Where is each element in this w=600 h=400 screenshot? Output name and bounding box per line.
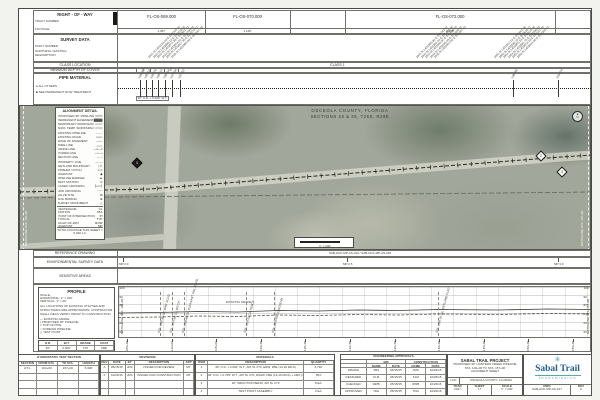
elevation-label-right: 50 bbox=[584, 331, 587, 334]
scale-value: 1" = 200' bbox=[492, 388, 522, 391]
hydro-row-empty-cell bbox=[19, 374, 37, 382]
profile-legend-symbol-5: △ bbox=[40, 330, 42, 334]
elevation-label-right: 70 bbox=[584, 313, 587, 316]
material-row-cell: 554' bbox=[304, 373, 334, 381]
approval-row-cell: 05/15/15 bbox=[387, 375, 407, 382]
hydro-row: HT-1104+00157+005,300' bbox=[19, 366, 99, 374]
legend-row: SURVEY MONUMENT△ bbox=[57, 201, 103, 205]
profile-station-label: 115+00 bbox=[215, 341, 218, 351]
route-marker-3-number: 3 bbox=[561, 170, 563, 174]
approval-row-cell: 05/15/15 bbox=[387, 389, 407, 396]
approval-row-cell: 10/26/15 bbox=[426, 375, 446, 382]
pipe-station-tick bbox=[513, 80, 514, 97]
revision-row-empty-cell bbox=[135, 389, 184, 396]
scale-bar-label: 1" = 200' bbox=[295, 245, 355, 248]
dwg-rev-row: DWG SAB-HCK-MP-AS-017 REV 0 bbox=[524, 385, 591, 396]
legend-label: SURVEY MONUMENT bbox=[58, 201, 89, 205]
material-row-cell: 36" INDUCTION BEND, API 5L X70 bbox=[208, 381, 304, 389]
tract-id-2: FL-OS-070.000 bbox=[207, 14, 288, 19]
elevation-label-right: 80 bbox=[584, 304, 587, 307]
profile-station-label: 155+00 bbox=[572, 341, 575, 351]
reference-drawing-title: REFERENCE DRAWING bbox=[55, 251, 95, 255]
hydro-row-empty bbox=[19, 381, 99, 389]
elevation-label-left: 100 bbox=[120, 287, 125, 290]
design-data-row: 36" 0.600" X70 FBE bbox=[39, 346, 114, 351]
revision-row-empty-cell bbox=[101, 389, 109, 396]
material-row-cell: 2 bbox=[196, 373, 208, 381]
revision-row-cell: MT bbox=[184, 373, 194, 381]
environmental-labelbox: ENVIRONMENTAL SURVEY DATA bbox=[33, 257, 118, 268]
pipe-station-tick bbox=[146, 80, 147, 97]
profile-legend-box: PROFILE SCALE: HORIZONTAL: 1" = 200' VER… bbox=[38, 287, 115, 339]
tract-divider-4 bbox=[555, 10, 556, 34]
scale-cell: SCALE 1" = 200' bbox=[492, 385, 522, 396]
abbrev-value: MP bbox=[98, 224, 103, 227]
revision-row-cell: A bbox=[101, 365, 109, 373]
approval-row-cell: APPROVED bbox=[341, 389, 367, 396]
design-value-wt: 0.600" bbox=[58, 346, 77, 351]
revision-row-cell: ISSUED FOR REVIEW bbox=[135, 365, 184, 373]
material-row: 4TEST POINT ASSEMBLY2 EA. bbox=[196, 389, 334, 396]
loc-value: OSCEOLA COUNTY, FLORIDA bbox=[460, 378, 522, 384]
environmental-title: ENVIRONMENTAL SURVEY DATA bbox=[35, 260, 115, 264]
material-row-cell: 4,746' bbox=[304, 365, 334, 373]
class-location-title: CLASS LOCATION bbox=[60, 63, 91, 67]
elevation-label-right: 90 bbox=[584, 296, 587, 299]
logo-block: ✳ Sabal Trail TRANSMISSION DWG SAB-HCK-M… bbox=[523, 354, 592, 396]
hydro-row-empty-cell bbox=[37, 374, 58, 382]
revision-row-cell: JDS bbox=[126, 373, 135, 381]
approval-row-cell: JMS bbox=[406, 368, 426, 375]
right-of-way-title: RIGHT - OF - WAY bbox=[33, 12, 117, 17]
matchline-right-label: MATCHLINE STA. 157+00 bbox=[581, 211, 584, 246]
elevation-label-left: 50 bbox=[120, 331, 123, 334]
design-value-od: 36" bbox=[39, 346, 58, 351]
approval-row: DESIGNEDKLM05/15/15KLM10/26/15 bbox=[341, 375, 446, 382]
logo-name: Sabal Trail bbox=[524, 364, 591, 374]
hydro-row-empty bbox=[19, 389, 99, 396]
matchline-right-line bbox=[588, 106, 589, 250]
reference-drawing-labelbox: REFERENCE DRAWING bbox=[33, 250, 118, 257]
pipe-station-tick bbox=[558, 80, 559, 97]
approvals-rows: BIDCONSTRUCTIONNAMEDATENAMEDATEDRAWNJMS0… bbox=[341, 360, 446, 396]
pipe-station-tick bbox=[158, 80, 159, 97]
revision-row-cell: MT bbox=[184, 365, 194, 373]
depth-tick-1 bbox=[136, 68, 137, 74]
revision-row-cell: ISSUED FOR CONSTRUCTION bbox=[135, 373, 184, 381]
scale-bar-segments bbox=[300, 241, 340, 244]
approval-row-cell: 10/26/15 bbox=[426, 368, 446, 375]
legend-symbol: △ bbox=[100, 201, 102, 205]
profile-station-label: 110+00 bbox=[171, 341, 174, 351]
title-block-text: SABAL TRAIL PROJECT PROPOSED 36" HUNTERS… bbox=[448, 355, 522, 378]
profile-station-label: 150+00 bbox=[527, 341, 530, 351]
approvals-block: ENGINEERING APPROVALS BIDCONSTRUCTIONNAM… bbox=[340, 354, 447, 396]
tract-id-1: FL-OS-069.000 bbox=[120, 14, 203, 19]
alignment-detail-rows: PROPOSED 36" PIPELINE━━━━PERMANENT EASEM… bbox=[57, 114, 103, 205]
design-value-coat: FBE bbox=[95, 346, 114, 351]
revision-row-empty-cell bbox=[109, 381, 126, 389]
design-data-table: O.D. W.T. GRADE COAT 36" 0.600" X70 FBE bbox=[38, 340, 115, 351]
materials-rows: ITEMDESCRIPTIONQUANTITY136" O.D. x 0.600… bbox=[196, 361, 334, 397]
title-meta-row: YEAR 2017 SHEET 17 SCALE 1" = 200' bbox=[448, 385, 522, 396]
hydro-row-empty-cell bbox=[79, 389, 99, 396]
pipe-material-line bbox=[118, 88, 591, 89]
approval-row-cell: KLM bbox=[406, 375, 426, 382]
revision-row-empty bbox=[101, 389, 194, 396]
dwg-cell: DWG SAB-HCK-MP-AS-017 bbox=[524, 385, 571, 396]
hydro-row-cell: 5,300' bbox=[79, 366, 99, 374]
route-marker-2-number: 2 bbox=[540, 154, 542, 158]
revisions-rows: REVDATEBYDESCRIPTIONAPPA05/15/15JDSISSUE… bbox=[101, 361, 194, 397]
pipe-station-tick bbox=[140, 80, 141, 97]
alignment-sheet: RIGHT - OF - WAY TRACT NUMBER FOOTAGE SU… bbox=[0, 0, 600, 400]
dwg-value: SAB-HCK-MP-AS-017 bbox=[524, 388, 570, 391]
rev-cell: REV 0 bbox=[571, 385, 591, 396]
road-vertical bbox=[163, 106, 181, 250]
approval-row: DRAWNJMS05/15/15JMS10/26/15 bbox=[341, 368, 446, 375]
pipe-station-tick bbox=[152, 80, 153, 97]
approval-row-cell: TDH bbox=[406, 389, 426, 396]
material-row: 336" INDUCTION BEND, API 5L X708 EA. bbox=[196, 381, 334, 389]
material-row-cell: 36" O.D. x 0.709" W.T., API 5L X70, DSAW… bbox=[208, 373, 304, 381]
county-label: OSCEOLA COUNTY, FLORIDA bbox=[230, 108, 470, 113]
palm-starburst-icon: ✳ bbox=[524, 356, 591, 364]
pipe-legend-text-1: ALL OTHERS bbox=[38, 84, 57, 88]
approval-row-cell: 05/15/15 bbox=[387, 382, 407, 389]
material-row-cell: 3 bbox=[196, 381, 208, 389]
pipe-material-title: PIPE MATERIAL bbox=[33, 75, 117, 80]
scale-reference-bar bbox=[113, 12, 117, 25]
approval-row-cell: TDH bbox=[367, 389, 387, 396]
hydro-row-empty-cell bbox=[37, 389, 58, 396]
milepost-label: MP 3.0 bbox=[554, 263, 563, 266]
company-logo: ✳ Sabal Trail TRANSMISSION bbox=[524, 355, 591, 385]
approval-row-cell: 10/26/15 bbox=[426, 389, 446, 396]
profile-station-label: 120+00 bbox=[260, 341, 263, 351]
reference-drawing-value: SAB-HCK-MP-AS-016 / SAB-HCK-MP-AS-018 bbox=[260, 252, 460, 255]
hydro-test-block: HYDROSTATIC TEST SECTION SECTIONFROM STA… bbox=[18, 354, 100, 396]
revision-row: A05/15/15JDSISSUED FOR REVIEWMT bbox=[101, 365, 194, 373]
approval-row-cell: CHECKED bbox=[341, 382, 367, 389]
revision-row-cell: 05/15/15 bbox=[109, 365, 126, 373]
hydro-row-empty-cell bbox=[19, 381, 37, 389]
approval-row-cell: DRAWN bbox=[341, 368, 367, 375]
hydro-row-empty-cell bbox=[58, 389, 80, 396]
hydro-row-empty bbox=[19, 374, 99, 382]
profile-note: ALL LOCATIONS OF EXISTING UTILITIES AND … bbox=[40, 305, 113, 317]
tract-footage-2: 1,160' bbox=[207, 30, 288, 33]
pipe-station-tick bbox=[172, 80, 173, 97]
approval-row-cell: KLM bbox=[367, 375, 387, 382]
hydro-row-empty-cell bbox=[37, 381, 58, 389]
material-row-cell: 8 EA. bbox=[304, 381, 334, 389]
matchline-left-label: MATCHLINE STA. 104+00 bbox=[25, 211, 28, 246]
revision-row-empty bbox=[101, 381, 194, 389]
milepost-label: MP 2.5 bbox=[343, 263, 352, 266]
alignment-detail-abbreviations: CENTERLINECLSTATIONSTAPOINT OF INTERSECT… bbox=[57, 207, 103, 227]
hydro-test-rows: SECTIONFROM STA.TO STA.LENGTHHT-1104+001… bbox=[19, 362, 99, 397]
material-row-cell: TEST POINT ASSEMBLY bbox=[208, 389, 304, 396]
alignment-detail-box: ALIGNMENT DETAIL PROPOSED 36" PIPELINE━━… bbox=[55, 107, 105, 240]
sheet-value: 17 bbox=[468, 388, 491, 391]
revision-row-empty-cell bbox=[126, 381, 135, 389]
elevation-label-left: 70 bbox=[120, 313, 123, 316]
pipe-legend-row-1: ● ALL OTHERS bbox=[36, 85, 57, 88]
survey-data-labelbox: SURVEY DATA POINT NUMBER NORTHING / EAST… bbox=[33, 34, 118, 62]
revision-row-cell: 0 bbox=[101, 373, 109, 381]
sheet-cell: SHEET 17 bbox=[468, 385, 492, 396]
approval-row-cell: DESIGNED bbox=[341, 375, 367, 382]
north-arrow-icon: ▲ N bbox=[572, 111, 583, 122]
tract-divider-1 bbox=[205, 10, 206, 34]
hydro-row-empty-cell bbox=[79, 374, 99, 382]
material-row-cell: 1 bbox=[196, 365, 208, 373]
rev-value: 0 bbox=[571, 388, 591, 391]
approval-row: CHECKEDRWB05/15/15RWB10/26/15 bbox=[341, 382, 446, 389]
hydro-row-cell: HT-1 bbox=[19, 366, 37, 374]
year-value: 2017 bbox=[448, 388, 467, 391]
approval-row-cell: 05/15/15 bbox=[387, 368, 407, 375]
logo-subtitle: TRANSMISSION bbox=[535, 375, 581, 381]
revision-row-empty-cell bbox=[135, 381, 184, 389]
elevation-label-left: 80 bbox=[120, 304, 123, 307]
sheet-type: ALIGNMENT SHEET bbox=[471, 370, 499, 373]
material-row: 136" O.D. x 0.600" W.T., API 5L X70, ERW… bbox=[196, 365, 334, 373]
revision-row-empty-cell bbox=[184, 389, 194, 396]
tract-divider-2 bbox=[290, 10, 291, 34]
design-value-grade: X70 bbox=[77, 346, 96, 351]
profile-station-label: 135+00 bbox=[394, 341, 397, 351]
survey-data-title: SURVEY DATA bbox=[33, 37, 117, 42]
existing-grade-label: EXISTING GRADE bbox=[226, 301, 252, 304]
approval-row-cell: RWB bbox=[367, 382, 387, 389]
approval-row-cell: RWB bbox=[406, 382, 426, 389]
profile-legend-item-5: △ TEST POINT bbox=[40, 331, 113, 334]
section-township-label: SECTIONS 26 & 35, T25S, R29E bbox=[230, 114, 470, 119]
profile-legend-list: — EXISTING GRADE ▪ PROPOSED 36" PIPELINE… bbox=[40, 318, 113, 335]
elevation-label-right: 100 bbox=[584, 287, 589, 290]
revision-row-cell: JDS bbox=[126, 365, 135, 373]
class-location-value: CLASS 1 bbox=[330, 63, 345, 67]
north-arrow-label: N bbox=[573, 116, 582, 119]
profile-legend-text-5: TEST POINT bbox=[43, 330, 61, 334]
pipe-material-labelbox: PIPE MATERIAL ● ALL OTHERS ■ SEE PERMANE… bbox=[33, 73, 118, 105]
profile-station-label: 140+00 bbox=[438, 341, 441, 351]
survey-sub-point: POINT NUMBER bbox=[35, 45, 58, 48]
approval-row: APPROVEDTDH05/15/15TDH10/26/15 bbox=[341, 389, 446, 396]
revision-row-empty-cell bbox=[109, 389, 126, 396]
map-scale-bar: 1" = 200' bbox=[294, 237, 354, 248]
sensitive-areas-title: SENSITIVE AREAS bbox=[59, 274, 91, 278]
tract-id-3: FL-OS-072.000 bbox=[347, 14, 553, 19]
hydro-row-empty-cell bbox=[19, 389, 37, 396]
materials-block: MATERIALS ITEMDESCRIPTIONQUANTITY136" O.… bbox=[195, 354, 335, 396]
material-row: 236" O.D. x 0.709" W.T., API 5L X70, DSA… bbox=[196, 373, 334, 381]
right-of-way-labelbox: RIGHT - OF - WAY TRACT NUMBER FOOTAGE bbox=[33, 10, 118, 34]
depth-of-cover-title: MINIMUM DEPTH OF COVER bbox=[50, 68, 99, 72]
revision-row-empty-cell bbox=[126, 389, 135, 396]
profile-station-label: 130+00 bbox=[349, 341, 352, 351]
revision-row-empty-cell bbox=[101, 381, 109, 389]
approval-row-cell: 10/26/15 bbox=[426, 382, 446, 389]
sensitive-areas-labelbox: SENSITIVE AREAS bbox=[33, 268, 118, 284]
pipe-station-tick bbox=[180, 80, 181, 97]
material-row-cell: 4 bbox=[196, 389, 208, 396]
survey-sub-desc: DESCRIPTION bbox=[35, 54, 56, 57]
hydro-row-empty-cell bbox=[79, 381, 99, 389]
revision-row: 010/26/15JDSISSUED FOR CONSTRUCTIONMT bbox=[101, 373, 194, 381]
hydro-row-empty-cell bbox=[58, 381, 80, 389]
approval-row-cell: JMS bbox=[367, 368, 387, 375]
total-footage-label: TOTAL FOOTAGE THIS SHEET = 5,300 L.F. bbox=[57, 227, 103, 235]
profile-matchline-right: MATCHLINE STA. 157+00 bbox=[587, 299, 590, 334]
pipeline-corridor bbox=[20, 155, 591, 192]
material-row-cell: 36" O.D. x 0.600" W.T., API 5L X70, ERW,… bbox=[208, 365, 304, 373]
map-route-svg bbox=[20, 106, 591, 250]
pipe-station-tick bbox=[165, 80, 166, 97]
year-cell: YEAR 2017 bbox=[448, 385, 468, 396]
material-row-cell: 2 EA. bbox=[304, 389, 334, 396]
profile-station-label: 145+00 bbox=[483, 341, 486, 351]
title-block: SABAL TRAIL PROJECT PROPOSED 36" HUNTERS… bbox=[447, 354, 523, 396]
hydro-row-empty-cell bbox=[58, 374, 80, 382]
hydro-row-cell: 104+00 bbox=[37, 366, 58, 374]
milepost-label: MP 2.0 bbox=[119, 263, 128, 266]
pipe-legend-row-2: ■ SEE PERMANENT ROW TREATMENT bbox=[36, 91, 91, 94]
revision-row-empty-cell bbox=[184, 381, 194, 389]
elevation-label-right: 60 bbox=[584, 322, 587, 325]
tract-divider-3 bbox=[345, 10, 346, 34]
profile-station-label: 125+00 bbox=[304, 341, 307, 351]
profile-station-label: 105+00 bbox=[126, 341, 129, 351]
tract-number-label: TRACT NUMBER bbox=[35, 20, 59, 23]
route-marker-1-number: 1 bbox=[136, 161, 138, 165]
pipe-legend-symbol-2: ■ bbox=[36, 90, 38, 94]
elevation-label-left: 60 bbox=[120, 322, 123, 325]
abbrev-label: MILEPOST bbox=[58, 224, 73, 227]
hydro-row-cell: 157+00 bbox=[58, 366, 80, 374]
pipe-legend-text-2: SEE PERMANENT ROW TREATMENT bbox=[39, 90, 92, 94]
revision-row-cell: 10/26/15 bbox=[109, 373, 126, 381]
revisions-block: REVISIONS REVDATEBYDESCRIPTIONAPPA05/15/… bbox=[100, 354, 195, 396]
footage-label: FOOTAGE bbox=[35, 28, 49, 31]
elevation-label-left: 90 bbox=[120, 296, 123, 299]
